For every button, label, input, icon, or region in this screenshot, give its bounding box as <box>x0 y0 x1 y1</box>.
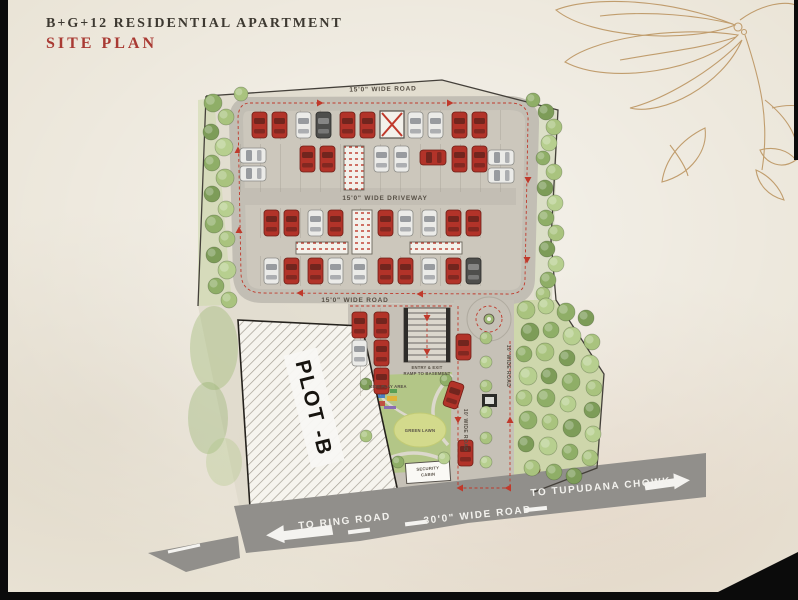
tree-icon <box>218 201 234 217</box>
car-red <box>452 112 467 138</box>
car-red <box>284 210 299 236</box>
car-white <box>352 340 367 366</box>
tree-icon <box>480 380 492 392</box>
car-red <box>378 258 393 284</box>
tree-icon <box>563 327 581 345</box>
car-red <box>328 210 343 236</box>
security-cabin-label-2: CABIN <box>421 472 436 478</box>
tree-icon <box>536 151 550 165</box>
tree-icon <box>519 411 537 429</box>
ramp-label-2: RAMP TO BASEMENT <box>403 371 450 376</box>
tree-icon <box>548 256 564 272</box>
tree-icon <box>518 436 534 452</box>
tree-icon <box>206 247 222 263</box>
transformer-box-icon <box>380 111 404 138</box>
tree-icon <box>205 215 223 233</box>
car-white <box>240 148 266 163</box>
tree-icon <box>562 373 580 391</box>
car-red <box>320 146 335 172</box>
tree-icon <box>480 356 492 368</box>
car-red <box>352 312 367 338</box>
car-red <box>420 150 446 165</box>
side-road-label: 10' WIDE ROAD <box>505 345 511 388</box>
tree-icon <box>516 390 532 406</box>
tree-icon <box>219 231 235 247</box>
tree-icon <box>541 368 557 384</box>
car-white <box>240 166 266 181</box>
lawn-label: GREEN LAWN <box>405 428 435 433</box>
site-plan-canvas: PLOT -B SECURITY CABIN <box>0 0 798 600</box>
tree-icon <box>560 396 576 412</box>
entry-gate-icon <box>482 394 497 407</box>
tree-icon <box>582 450 598 466</box>
tree-icon <box>584 334 600 350</box>
tree-icon <box>586 380 602 396</box>
tree-icon <box>216 169 234 187</box>
car-red <box>466 210 481 236</box>
tree-icon <box>559 350 575 366</box>
tree-icon <box>480 432 492 444</box>
car-red <box>272 112 287 138</box>
tree-icon <box>438 452 450 464</box>
tree-icon <box>526 93 540 107</box>
car-white <box>408 112 423 138</box>
car-white <box>428 112 443 138</box>
tree-icon <box>547 195 563 211</box>
tree-icon <box>392 456 404 468</box>
tree-icon <box>519 367 537 385</box>
tree-icon <box>203 124 219 140</box>
car-red <box>252 112 267 138</box>
car-red <box>340 112 355 138</box>
tree-icon <box>542 414 558 430</box>
project-title: B+G+12 RESIDENTIAL APARTMENT <box>46 16 343 32</box>
car-white <box>488 150 514 165</box>
car-white <box>264 258 279 284</box>
watercolor-green-3 <box>206 438 242 486</box>
car-red <box>308 258 323 284</box>
car-red <box>284 258 299 284</box>
car-red <box>300 146 315 172</box>
car-white <box>374 146 389 172</box>
tree-icon <box>557 303 575 321</box>
car-red <box>374 368 389 394</box>
tree-icon <box>537 389 555 407</box>
tree-icon <box>539 437 557 455</box>
car-dark <box>316 112 331 138</box>
car-white <box>422 258 437 284</box>
tree-icon <box>581 355 599 373</box>
tree-icon <box>538 210 554 226</box>
car-red <box>456 334 471 360</box>
tree-icon <box>584 402 600 418</box>
tree-icon <box>204 155 220 171</box>
car-white <box>328 258 343 284</box>
tree-icon <box>204 94 222 112</box>
tree-icon <box>215 138 233 156</box>
tree-icon <box>546 119 562 135</box>
car-white <box>422 210 437 236</box>
car-red <box>378 210 393 236</box>
tree-icon <box>578 310 594 326</box>
car-red <box>472 112 487 138</box>
tree-icon <box>539 241 555 257</box>
car-red <box>398 258 413 284</box>
tree-icon <box>566 468 582 484</box>
tree-icon <box>563 419 581 437</box>
top-road-label: 15'0" WIDE ROAD <box>349 85 416 93</box>
watercolor-green-1 <box>190 306 238 390</box>
tree-icon <box>480 456 492 468</box>
car-red <box>446 258 461 284</box>
tree-icon <box>562 444 578 460</box>
tree-icon <box>543 322 559 338</box>
tree-icon <box>516 346 532 362</box>
tree-icon <box>546 464 562 480</box>
tree-icon <box>204 186 220 202</box>
tree-icon <box>521 323 539 341</box>
tree-icon <box>524 460 540 476</box>
tree-icon <box>548 225 564 241</box>
kids-play-label: KIDS PLAY AREA <box>369 384 407 389</box>
tree-icon <box>234 87 248 101</box>
lower-road-label: 15'0" WIDE ROAD <box>321 297 388 304</box>
ramp-label-1: ENTRY & EXIT <box>411 365 442 370</box>
car-red <box>360 112 375 138</box>
tree-icon <box>208 278 224 294</box>
tree-icon <box>538 104 554 120</box>
car-red <box>374 340 389 366</box>
tree-icon <box>540 272 556 288</box>
car-white <box>308 210 323 236</box>
car-red <box>446 210 461 236</box>
car-white <box>352 258 367 284</box>
tree-icon <box>480 332 492 344</box>
driveway-label: 15'0" WIDE DRIVEWAY <box>342 195 427 202</box>
tree-icon <box>218 261 236 279</box>
roundabout-island-center <box>487 317 491 321</box>
tree-icon <box>536 343 554 361</box>
tree-icon <box>480 406 492 418</box>
car-red <box>452 146 467 172</box>
tree-icon <box>546 164 562 180</box>
tree-icon <box>585 426 601 442</box>
plan-type-title: SITE PLAN <box>46 35 343 53</box>
car-white <box>394 146 409 172</box>
flower-sketch-decoration <box>556 1 798 200</box>
stair-lift-core <box>352 210 372 254</box>
car-white <box>398 210 413 236</box>
tree-icon <box>538 298 554 314</box>
stair-lift-core <box>344 146 364 190</box>
tree-icon <box>517 301 535 319</box>
tree-icon <box>221 292 237 308</box>
tree-icon <box>541 135 557 151</box>
side-road-label-2: 10' WIDE ROAD <box>462 409 468 452</box>
stair-lift-core <box>296 242 348 254</box>
tree-icon <box>537 180 553 196</box>
tree-icon <box>360 430 372 442</box>
car-white <box>296 112 311 138</box>
car-dark <box>466 258 481 284</box>
car-red <box>264 210 279 236</box>
car-red <box>472 146 487 172</box>
stair-lift-core <box>410 242 462 254</box>
car-white <box>488 168 514 183</box>
car-red <box>374 312 389 338</box>
tree-icon <box>218 109 234 125</box>
title-block: B+G+12 RESIDENTIAL APARTMENT SITE PLAN <box>46 16 343 53</box>
road-branch-wedge <box>148 536 240 572</box>
